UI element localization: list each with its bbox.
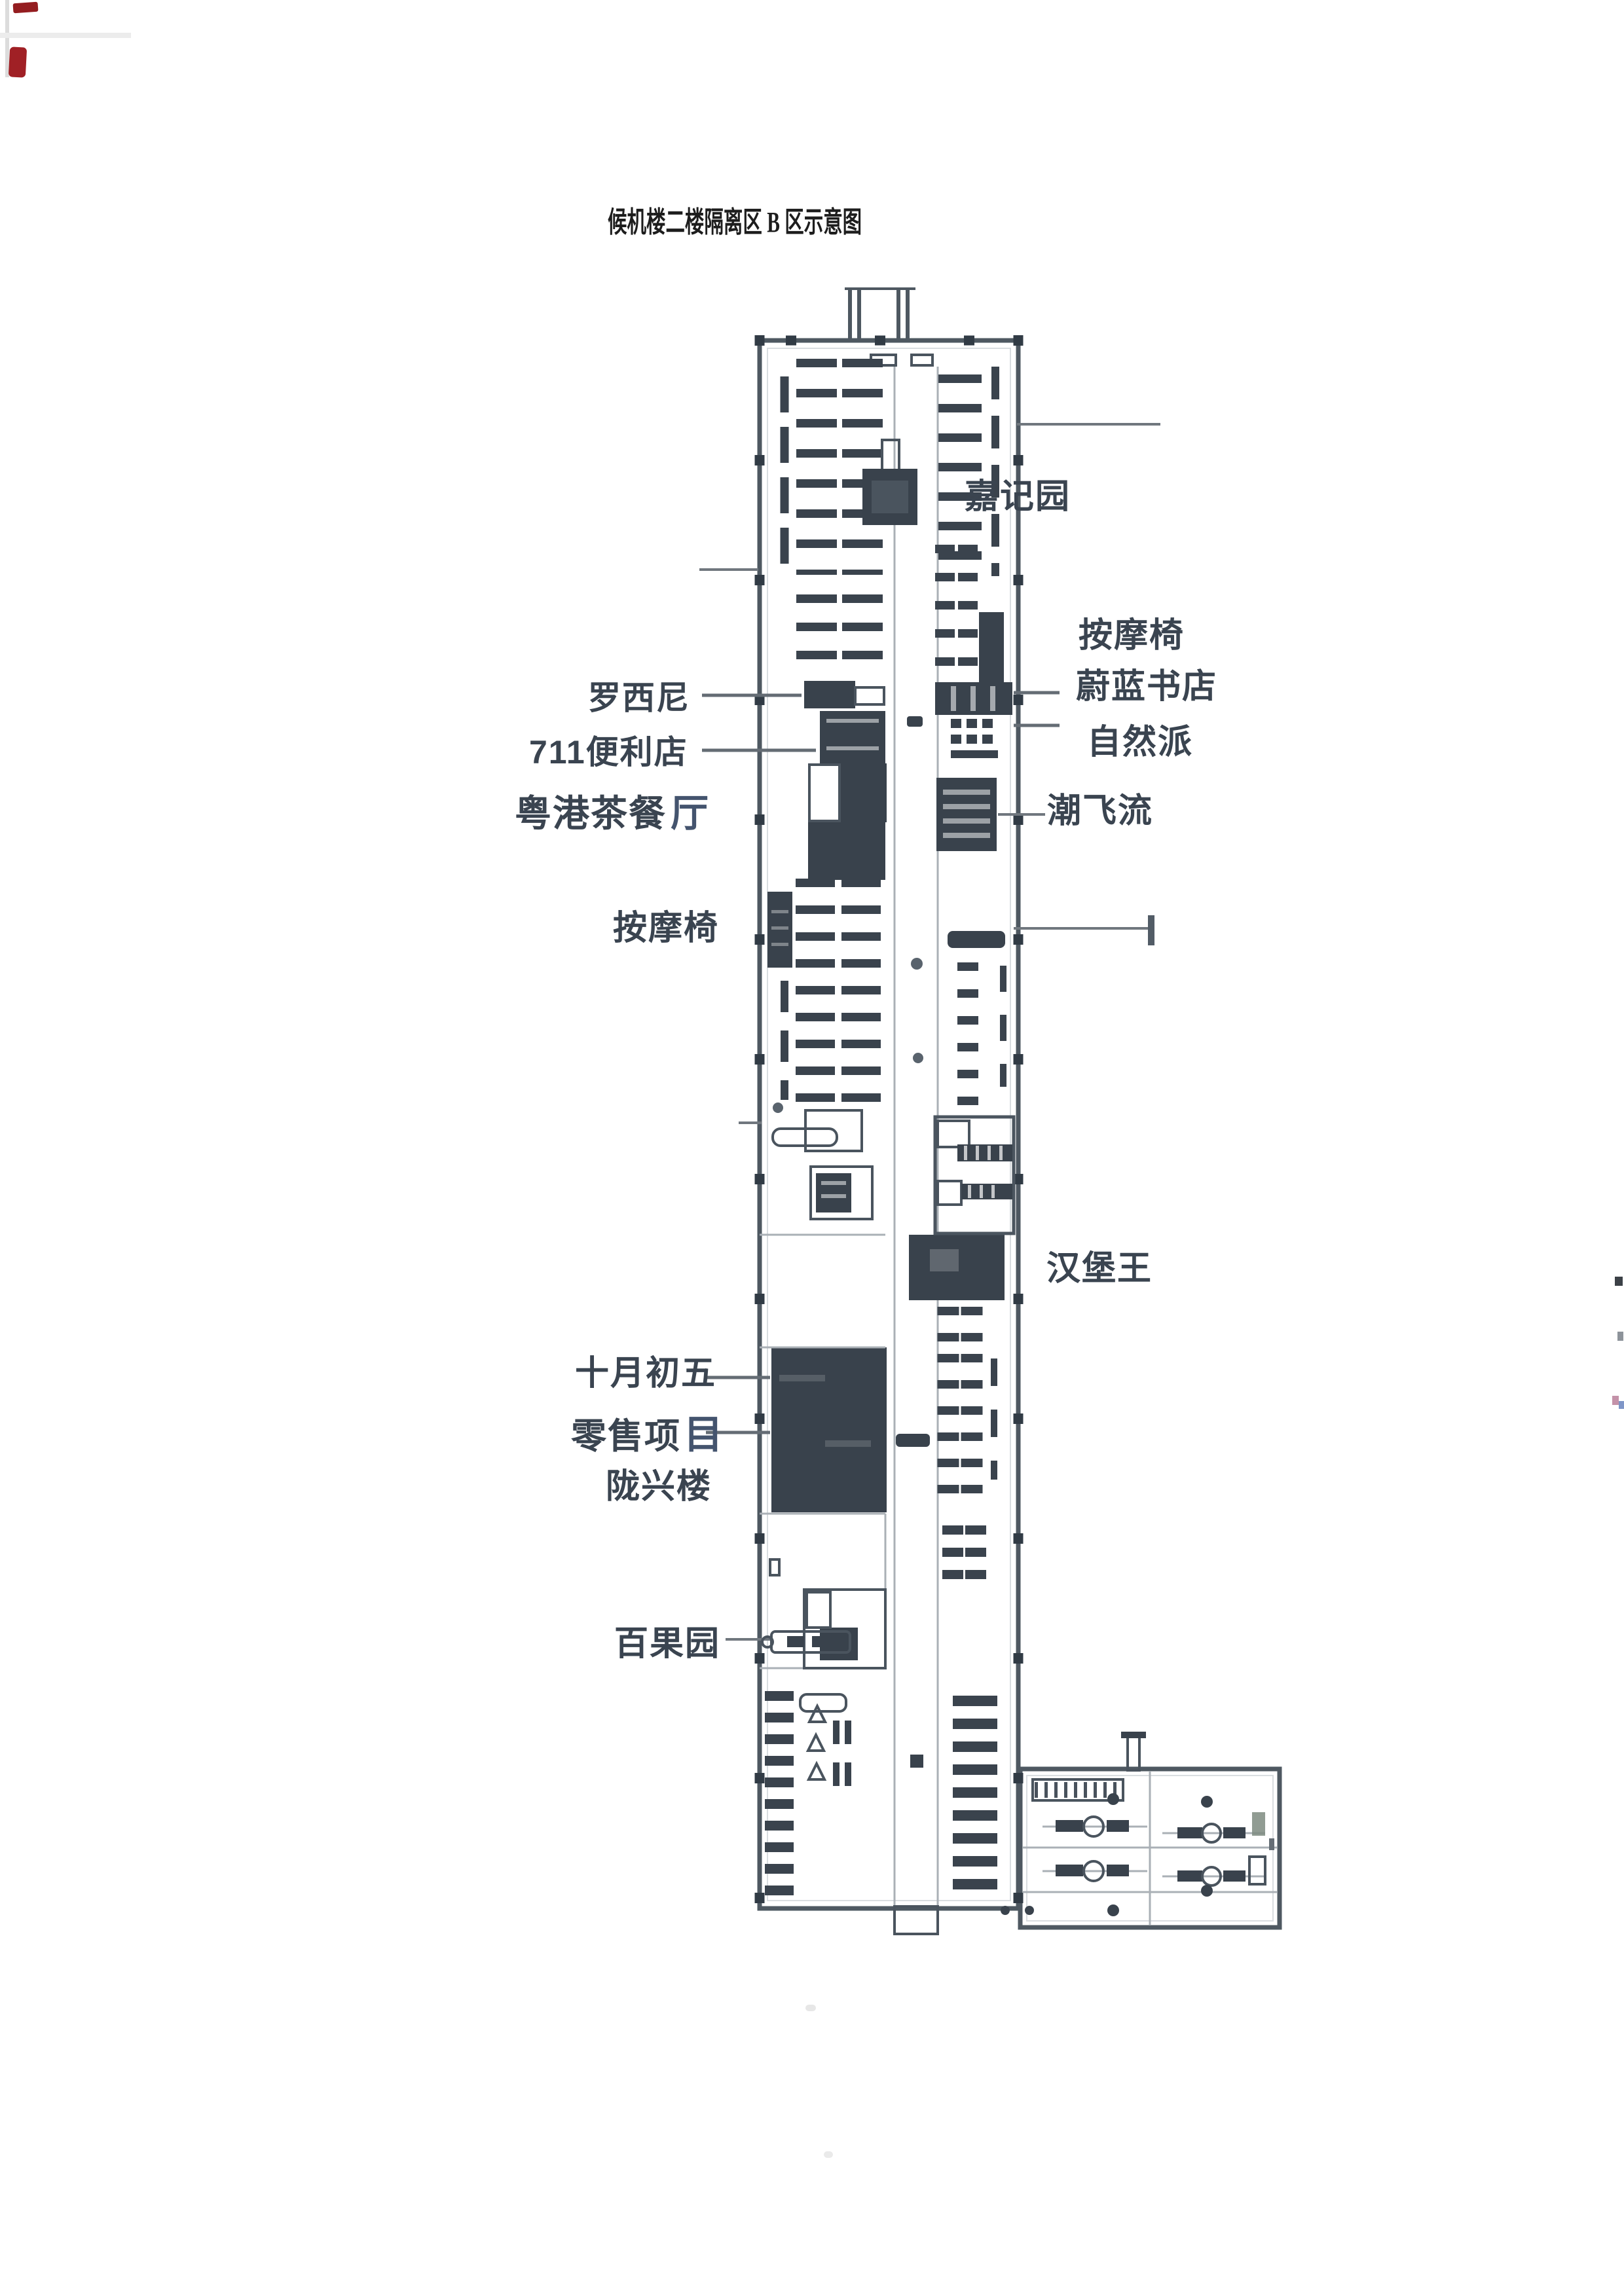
floor-plan-drawing [0,0,1624,2296]
plan-extension-room [1001,1732,1277,1925]
shop-block-massage-right [979,612,1004,687]
shop-block-rossini [804,681,855,708]
label-shiyuechuwu: 十月初五 [575,1357,716,1391]
label-burger-king: 汉堡王 [1046,1252,1153,1286]
shop-block-ziranpai [951,719,998,758]
label-yuegang: 粤港茶餐厅 [515,795,710,833]
shop-block-yuegang [840,763,887,822]
label-yuegang-suffix: 厅 [671,792,710,835]
label-seven-eleven: 711便利店 [529,736,688,769]
label-longxinglou: 陇兴楼 [606,1470,712,1504]
plan-leader-lines [699,424,1160,1639]
shop-block-chaofeiliu [936,778,997,851]
label-retail: 零售项目 [571,1415,724,1455]
label-rossini: 罗西尼 [588,682,690,714]
label-ziranpai: 自然派 [1087,725,1193,759]
label-retail-prefix: 零售项 [571,1417,681,1456]
plan-corridor [871,355,938,1905]
label-baiguoyuan: 百果园 [614,1627,720,1661]
label-chaofeiliu: 潮飞流 [1047,794,1153,828]
label-massage-right: 按摩椅 [1079,619,1185,653]
label-yuegang-prefix: 粤港茶餐 [515,793,667,834]
scanned-page: 候机楼二楼隔离区 B 区示意图 [0,0,1624,2296]
label-retail-suffix: 目 [684,1413,724,1457]
label-massage-left: 按摩椅 [613,911,719,945]
label-weilan-bookstore: 蔚蓝书店 [1076,670,1217,704]
label-jiajiyuan: 嘉记园 [965,480,1071,514]
shop-block-shiyuechuwu [771,1347,887,1512]
